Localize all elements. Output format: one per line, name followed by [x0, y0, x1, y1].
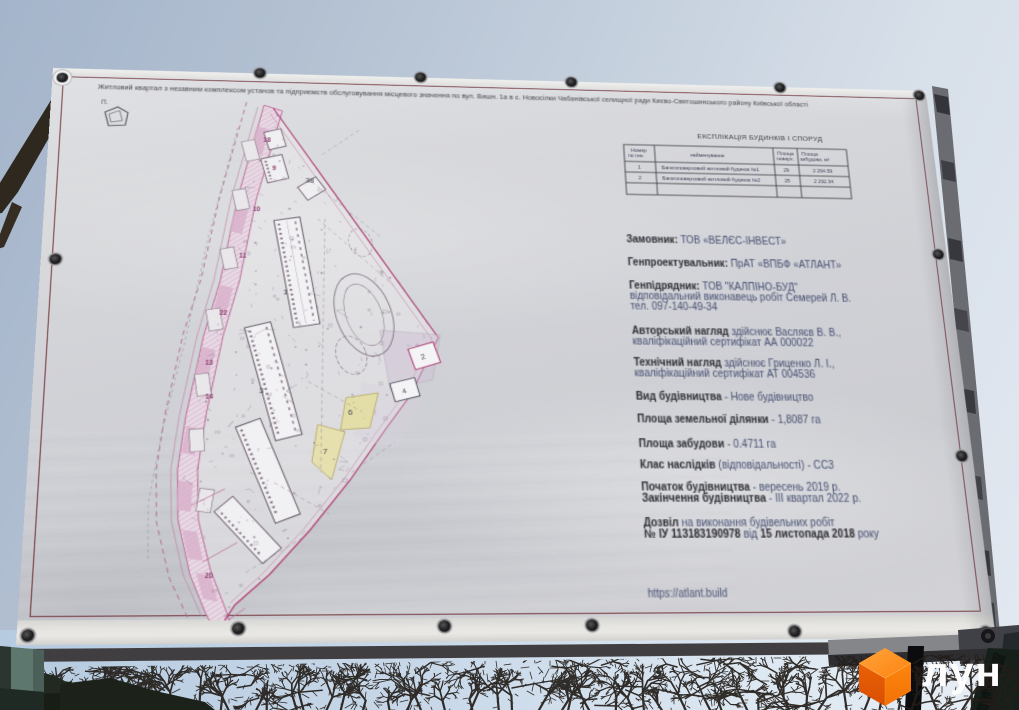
svg-text:лун: лун — [922, 648, 1003, 695]
